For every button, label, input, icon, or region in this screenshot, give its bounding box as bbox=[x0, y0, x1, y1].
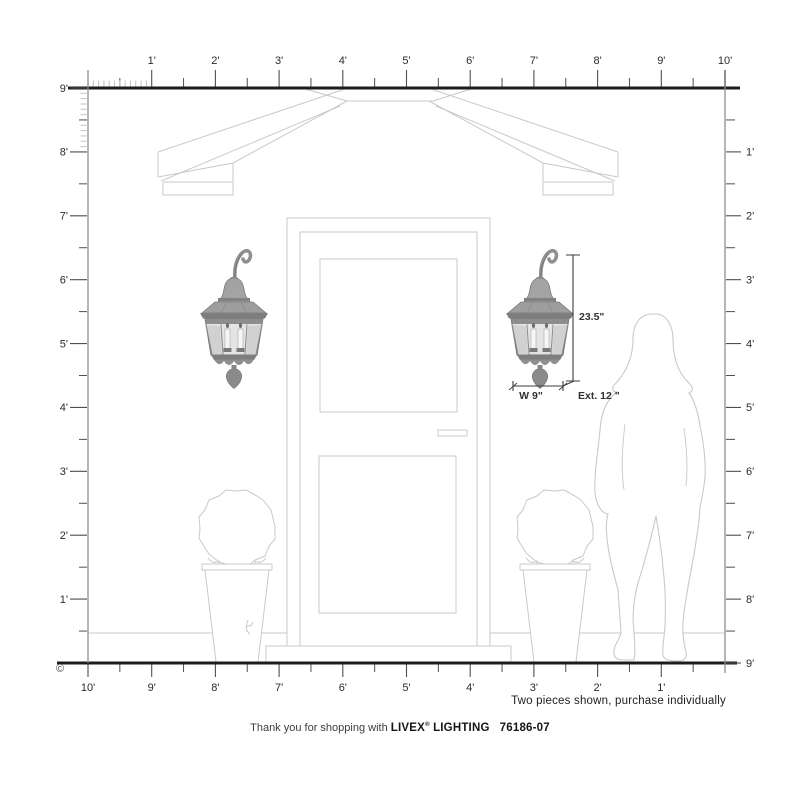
door-upper-panel bbox=[320, 259, 457, 412]
product-sku: 76186-07 bbox=[500, 722, 550, 734]
entry-door bbox=[266, 218, 511, 663]
ruler-label: 8' bbox=[593, 55, 601, 67]
ruler-label: 8' bbox=[60, 147, 68, 159]
porch-roof bbox=[158, 88, 618, 195]
ruler-label: 10' bbox=[718, 55, 732, 67]
ruler-label: 9' bbox=[657, 55, 665, 67]
ruler-label: 4' bbox=[746, 338, 754, 350]
door-lower-panel bbox=[319, 456, 456, 613]
planter-body bbox=[523, 570, 587, 662]
planter-right bbox=[517, 490, 593, 662]
ruler-label: 6' bbox=[60, 274, 68, 286]
ruler-label: 5' bbox=[60, 338, 68, 350]
planter-rim bbox=[520, 564, 590, 570]
brand-name: LIVEX® bbox=[391, 722, 430, 734]
ruler-label: 5' bbox=[402, 55, 410, 67]
ruler-label: 8' bbox=[746, 594, 754, 606]
ruler-label: 1' bbox=[657, 682, 665, 694]
wall-lantern-right bbox=[506, 251, 574, 389]
ruler-label: 3' bbox=[746, 274, 754, 286]
house-drawing bbox=[88, 88, 725, 663]
bottom-ruler-line bbox=[57, 662, 737, 665]
planter-rim bbox=[202, 564, 272, 570]
copyright-symbol: © bbox=[56, 663, 64, 675]
ruler-label: 8' bbox=[211, 682, 219, 694]
wall-lantern-left bbox=[200, 251, 268, 389]
topiary-ball bbox=[199, 490, 275, 567]
ruler-label: 2' bbox=[211, 55, 219, 67]
ruler-label: 9' bbox=[60, 83, 68, 95]
top-ruler-line bbox=[68, 87, 740, 90]
ruler-label: 6' bbox=[746, 466, 754, 478]
topiary-ball bbox=[517, 490, 593, 567]
door-step bbox=[266, 646, 511, 663]
ruler-label: 7' bbox=[530, 55, 538, 67]
footer-prefix: Thank you for shopping with bbox=[250, 722, 388, 734]
ruler-label: 7' bbox=[60, 211, 68, 223]
footer-text: Thank you for shopping with LIVEX® LIGHT… bbox=[0, 721, 800, 734]
planter-body bbox=[205, 570, 269, 662]
width-dimension-label: W 9" bbox=[519, 390, 543, 402]
ruler-label: 5' bbox=[746, 402, 754, 414]
ruler-label: 9' bbox=[746, 658, 754, 670]
ruler-label: 2' bbox=[593, 682, 601, 694]
ruler-label: 1' bbox=[148, 55, 156, 67]
door-mail-slot bbox=[438, 430, 467, 436]
ruler-label: 3' bbox=[60, 466, 68, 478]
ruler-label: 9' bbox=[148, 682, 156, 694]
planter-left bbox=[199, 490, 275, 662]
purchase-note: Two pieces shown, purchase individually bbox=[511, 695, 726, 707]
ruler-label: 5' bbox=[402, 682, 410, 694]
ruler-label: 2' bbox=[746, 211, 754, 223]
extension-dimension-label: Ext. 12 " bbox=[578, 390, 620, 402]
ruler-label: 6' bbox=[466, 55, 474, 67]
ruler-label: 3' bbox=[530, 682, 538, 694]
ruler-label: 7' bbox=[746, 530, 754, 542]
ruler-label: 1' bbox=[746, 147, 754, 159]
brand-name-2: LIGHTING bbox=[433, 722, 490, 734]
ruler-label: 4' bbox=[466, 682, 474, 694]
height-dimension-label: 23.5" bbox=[579, 311, 604, 323]
diagram-canvas: 23.5" W 9" Ext. 12 " 1'2'3'4'5'6'7'8'9'1… bbox=[0, 0, 800, 800]
product-scale-diagram: 23.5" W 9" Ext. 12 " 1'2'3'4'5'6'7'8'9'1… bbox=[0, 0, 800, 800]
ruler-label: 3' bbox=[275, 55, 283, 67]
woman-figure bbox=[595, 314, 705, 661]
ruler-label: 10' bbox=[81, 682, 95, 694]
registered-mark: ® bbox=[425, 721, 430, 728]
ruler-label: 4' bbox=[60, 402, 68, 414]
ruler-label: 4' bbox=[339, 55, 347, 67]
ruler-label: 2' bbox=[60, 530, 68, 542]
ruler-label: 1' bbox=[60, 594, 68, 606]
ruler-label: 6' bbox=[339, 682, 347, 694]
ruler-label: 7' bbox=[275, 682, 283, 694]
